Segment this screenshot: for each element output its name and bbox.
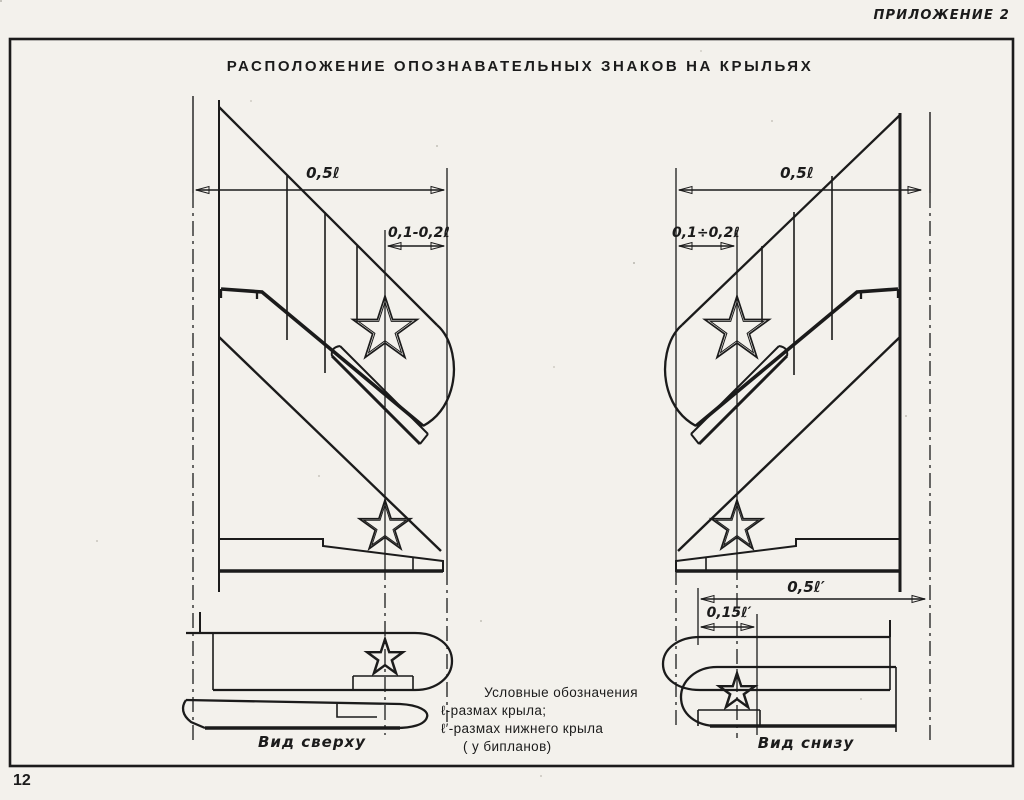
- right-view-drawing: [663, 112, 930, 740]
- left-view-caption: Вид сверху: [258, 733, 366, 751]
- right-lower-star-offset-dimension-label: 0,15ℓ′: [707, 605, 752, 621]
- left-lower-biplane-wing: [186, 700, 427, 728]
- left-wing-trailing-edge: [221, 289, 423, 426]
- legend-line-lower-wing-span: ℓ′-размах нижнего крыла: [441, 720, 681, 738]
- left-half-span-dimension-label: 0,5ℓ: [306, 164, 340, 182]
- right-wing-leading-edge: [682, 115, 900, 325]
- legend-block: Условные обозначения ℓ-размах крыла; ℓ′-…: [441, 684, 681, 756]
- left-aileron-lower-line: [332, 356, 420, 444]
- wing-marking-diagram: [0, 0, 1024, 800]
- right-lower-biplane-wing: [681, 667, 896, 726]
- legend-title: Условные обозначения: [441, 684, 681, 702]
- left-view-drawing: [183, 96, 454, 740]
- legend-line-wing-span: ℓ-размах крыла;: [441, 702, 681, 720]
- page-title: РАСПОЛОЖЕНИЕ ОПОЗНАВАТЕЛЬНЫХ ЗНАКОВ НА К…: [227, 58, 814, 75]
- legend-line-biplanes: ( у бипланов): [441, 738, 681, 756]
- right-upper-biplane-wing: [663, 637, 890, 690]
- right-wing-chord-lines: [762, 176, 832, 375]
- right-aileron-lower-line: [699, 356, 787, 444]
- right-aileron-upper-line: [691, 346, 779, 434]
- right-wing-tip: [665, 325, 696, 426]
- diagram-frame: [10, 39, 1013, 766]
- left-upper-biplane-wing: [186, 633, 452, 690]
- annex-label: ПРИЛОЖЕНИЕ 2: [873, 8, 1010, 23]
- right-wing-front-view: [676, 539, 900, 571]
- right-lower-wing-step: [698, 710, 760, 726]
- scan-speckles: [0, 0, 2, 2]
- left-wing-tip: [423, 325, 454, 426]
- right-lower-half-span-dimension-label: 0,5ℓ′: [787, 578, 825, 596]
- left-lower-biplane-wing-root: [183, 700, 205, 728]
- page-number: 12: [13, 772, 31, 790]
- right-star-offset-dimension-label: 0,1÷0,2ℓ: [672, 225, 740, 241]
- right-half-span-dimension-label: 0,5ℓ: [780, 164, 814, 182]
- left-upper-wing-step: [353, 676, 413, 690]
- left-wing-front-view: [219, 539, 443, 571]
- left-aileron-upper-line: [340, 346, 428, 434]
- right-view-caption: Вид снизу: [758, 734, 855, 752]
- left-lower-wing-step: [337, 704, 377, 717]
- right-wing-trailing-edge: [696, 289, 898, 426]
- left-star-offset-dimension-label: 0,1-0,2ℓ: [388, 225, 450, 241]
- scanned-manual-page: ПРИЛОЖЕНИЕ 2 РАСПОЛОЖЕНИЕ ОПОЗНАВАТЕЛЬНЫ…: [0, 0, 1024, 800]
